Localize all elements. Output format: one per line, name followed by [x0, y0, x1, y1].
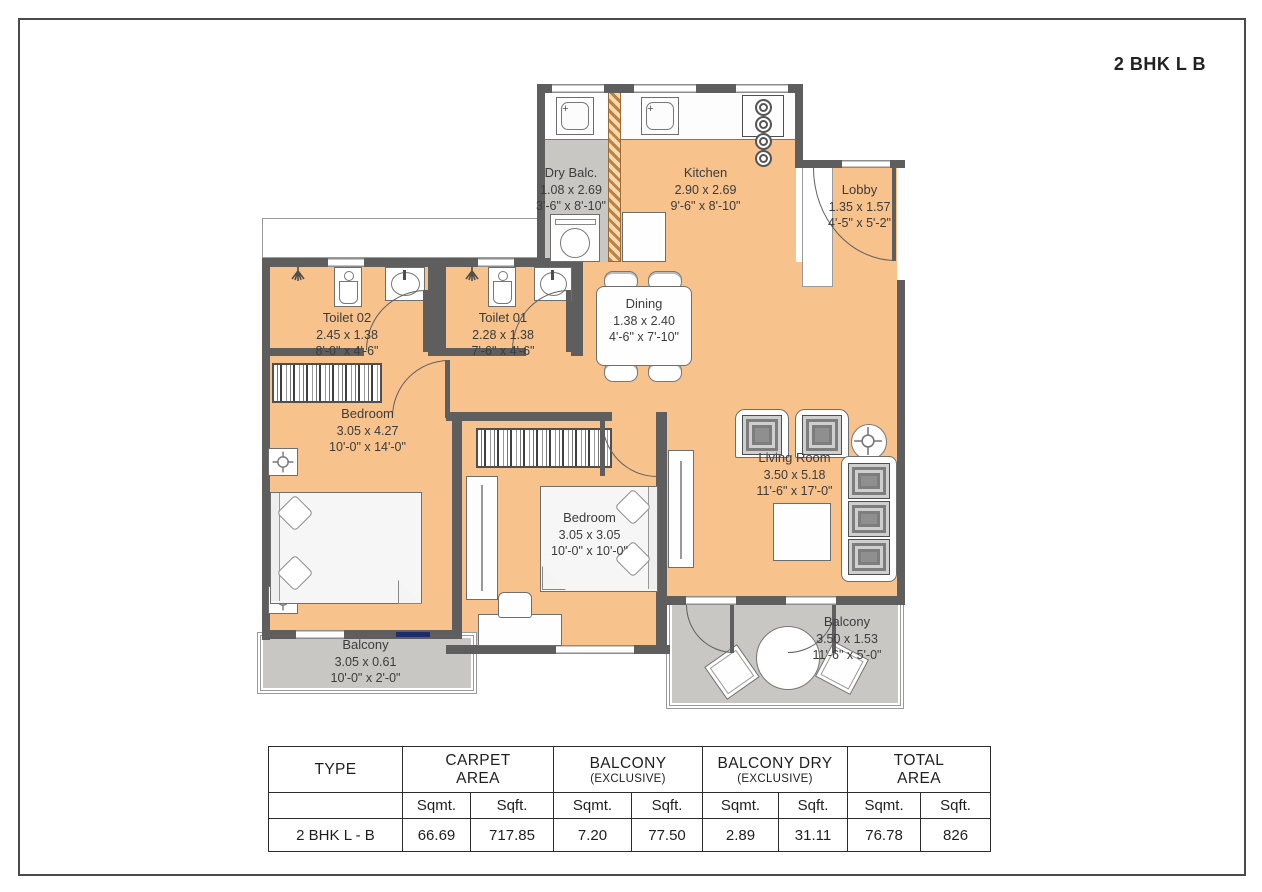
toilet-wc-icon	[488, 267, 516, 307]
wall	[446, 412, 612, 421]
table-value: 826	[921, 819, 991, 852]
sink-basin: +	[561, 102, 589, 130]
wc-flush	[344, 271, 354, 281]
armchair-cushion	[742, 415, 782, 455]
shower-icon	[288, 266, 308, 282]
table-value: 76.78	[848, 819, 921, 852]
table-value: 31.11	[779, 819, 848, 852]
tv-unit	[668, 450, 694, 568]
table-header-carpet: CARPET AREA	[403, 747, 554, 793]
table-unit: Sqft.	[921, 793, 991, 819]
door-leaf	[566, 290, 571, 352]
room-label-balcony2: Balcony3.50 x 1.5311'-6" x 5'-0"	[782, 614, 912, 663]
table-header-balcony-dry: BALCONY DRY (EXCLUSIVE)	[703, 747, 848, 793]
vent-window	[478, 258, 514, 267]
armchair-cushion	[802, 415, 842, 455]
header-line: TOTAL	[848, 752, 990, 770]
open-strip	[262, 218, 538, 258]
room-label-kitchen: Kitchen2.90 x 2.699'-6" x 8'-10"	[638, 165, 773, 214]
wc-flush	[498, 271, 508, 281]
room-label-living: Living Room3.50 x 5.1811'-6" x 17'-0"	[722, 450, 867, 499]
sink-icon: +	[556, 97, 594, 135]
sofa-cushion	[848, 539, 890, 575]
washer-drum	[560, 228, 590, 258]
header-subline: (EXCLUSIVE)	[554, 773, 702, 785]
sofa-cushion	[848, 501, 890, 537]
table-unit: Sqmt.	[403, 793, 471, 819]
corridor-floor	[446, 356, 583, 420]
table-unit: Sqmt.	[554, 793, 632, 819]
stool	[498, 592, 532, 618]
shower-icon	[462, 266, 482, 282]
table-header-balcony: BALCONY (EXCLUSIVE)	[554, 747, 703, 793]
desk	[478, 614, 562, 646]
table-unit: Sqft.	[779, 793, 848, 819]
table-value: 66.69	[403, 819, 471, 852]
room-label-bedroom2: Bedroom3.05 x 3.0510'-0" x 10'-0"	[522, 510, 657, 559]
wall	[262, 258, 583, 267]
window	[736, 84, 788, 93]
balcony-door-gap	[686, 596, 736, 605]
room-label-bedroom1: Bedroom3.05 x 4.2710'-0" x 14'-0"	[300, 406, 435, 455]
room-label-dry-balcony: Dry Balc.1.08 x 2.693'-6" x 8'-10"	[516, 165, 626, 214]
header-line: BALCONY	[554, 755, 702, 773]
wardrobe	[476, 428, 612, 468]
table-unit: Sqmt.	[703, 793, 779, 819]
wc-bowl	[493, 281, 512, 304]
table-value: 77.50	[632, 819, 703, 852]
header-line: BALCONY DRY	[703, 755, 847, 773]
basin-tap	[403, 270, 406, 280]
room-label-toilet02: Toilet 022.45 x 1.388'-0" x 4'-6"	[292, 310, 402, 359]
window	[556, 645, 634, 654]
table-unit: Sqft.	[632, 793, 703, 819]
table-unit-empty	[269, 793, 403, 819]
dresser	[466, 476, 498, 600]
door-leaf	[600, 421, 605, 476]
wall	[571, 258, 583, 356]
stove-icon	[742, 95, 784, 137]
wall	[897, 280, 905, 605]
basin-tap	[551, 270, 554, 280]
table-unit: Sqmt.	[848, 793, 921, 819]
sink-icon: +	[641, 97, 679, 135]
window	[634, 84, 696, 93]
header-line: AREA	[403, 770, 553, 788]
header-line: CARPET	[403, 752, 553, 770]
sink-basin: +	[646, 102, 674, 130]
room-label-toilet01: Toilet 012.28 x 1.387'-6" x 4'-6"	[448, 310, 558, 359]
table-value: 7.20	[554, 819, 632, 852]
tv-unit-line	[680, 461, 682, 559]
washer-top-line	[555, 219, 596, 225]
table-unit: Sqft.	[471, 793, 554, 819]
kitchen-platform	[622, 212, 666, 262]
room-label-lobby: Lobby1.35 x 1.574'-5" x 5'-2"	[812, 182, 907, 231]
washing-machine-icon	[550, 214, 600, 262]
burner-icon	[755, 133, 772, 150]
header-subline: (EXCLUSIVE)	[703, 773, 847, 785]
table-header-total: TOTAL AREA	[848, 747, 991, 793]
wall	[795, 84, 803, 168]
room-label-balcony1: Balcony3.05 x 0.6110'-0" x 2'-0"	[298, 637, 433, 686]
dresser-line	[481, 485, 483, 591]
toilet-wc-icon	[334, 267, 362, 307]
header-line: AREA	[848, 770, 990, 788]
window	[842, 160, 890, 168]
window	[552, 84, 604, 93]
wall	[452, 420, 462, 639]
burner-icon	[755, 116, 772, 133]
table-header-type: TYPE	[269, 747, 403, 793]
room-label-dining: Dining1.38 x 2.404'-6" x 7'-10"	[598, 296, 690, 345]
door-leaf	[423, 290, 428, 352]
burner-icon	[755, 99, 772, 116]
wall	[428, 258, 446, 356]
table-row-type: 2 BHK L - B	[269, 819, 403, 852]
door-leaf	[445, 360, 450, 418]
wardrobe	[272, 363, 382, 403]
door-leaf	[730, 605, 734, 653]
side-table	[268, 448, 298, 476]
area-table: TYPE CARPET AREA BALCONY (EXCLUSIVE) BAL…	[268, 746, 991, 852]
coffee-table	[773, 503, 831, 561]
balcony-door-gap	[786, 596, 836, 605]
wc-bowl	[339, 281, 358, 304]
table-value: 2.89	[703, 819, 779, 852]
table-value: 717.85	[471, 819, 554, 852]
vent-window	[328, 258, 364, 267]
